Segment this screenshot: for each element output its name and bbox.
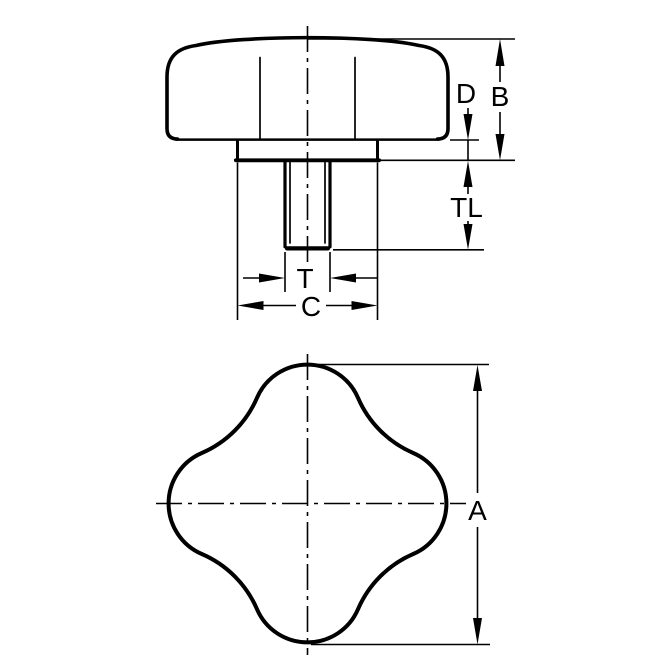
dim-d-arrow-down xyxy=(464,114,473,140)
dimension-d: D xyxy=(456,78,476,160)
dimension-a: A xyxy=(468,365,487,645)
dim-label-d: D xyxy=(456,78,476,109)
dim-label-a: A xyxy=(468,495,487,526)
dim-a-arrow-down xyxy=(473,618,482,645)
dimension-tl: TL xyxy=(450,161,483,250)
dim-tl-arrow-down xyxy=(464,224,473,250)
dim-b-arrow-up xyxy=(496,39,505,66)
dimension-c: C xyxy=(238,291,378,322)
dimension-t: T xyxy=(243,263,378,294)
dim-t-arrow-right xyxy=(259,274,285,283)
dim-label-t: T xyxy=(296,263,313,294)
dim-t-arrow-left xyxy=(330,274,356,283)
dim-label-b: B xyxy=(491,81,510,112)
knob-drawing-svg: D B TL T xyxy=(0,0,670,670)
dim-a-arrow-up xyxy=(473,365,482,391)
dim-c-arrow-left xyxy=(238,301,264,310)
dim-tl-arrow-up xyxy=(464,161,473,187)
dim-label-tl: TL xyxy=(450,192,483,223)
extension-lines-plan xyxy=(311,365,490,645)
dimension-b: B xyxy=(491,39,510,160)
technical-drawing: D B TL T xyxy=(0,0,670,670)
dim-c-arrow-right xyxy=(352,301,378,310)
side-view: D B TL T xyxy=(167,26,515,322)
dim-b-arrow-down xyxy=(496,134,505,160)
plan-view: A xyxy=(156,354,490,655)
dim-label-c: C xyxy=(301,291,321,322)
